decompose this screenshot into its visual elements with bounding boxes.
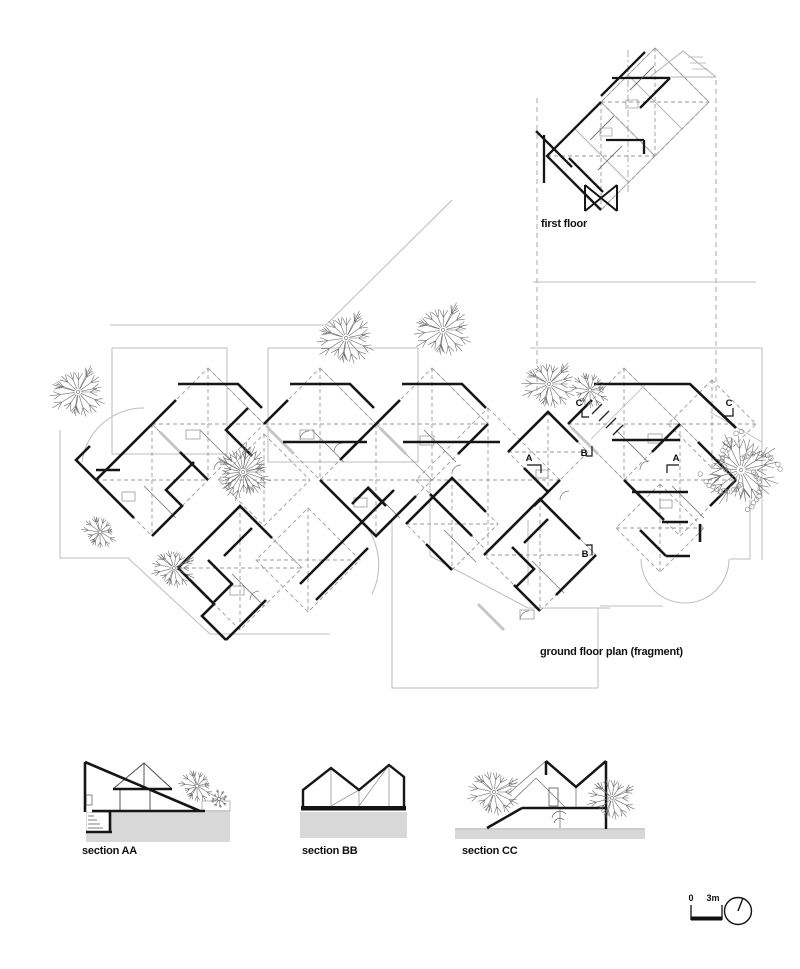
section-cc-stair bbox=[552, 811, 566, 823]
section-marker-b-bottom: B bbox=[582, 549, 589, 560]
walls-right-cluster bbox=[568, 384, 736, 556]
walls-mid-cluster bbox=[320, 412, 578, 570]
tree-trunk-icon bbox=[547, 382, 550, 385]
section-cc-window bbox=[549, 788, 558, 806]
section-cc-thin bbox=[505, 761, 576, 828]
section-aa-drawing bbox=[85, 762, 230, 842]
tree-trunk-icon bbox=[241, 470, 244, 473]
clock-compass-hand bbox=[738, 898, 743, 911]
tree-icon bbox=[587, 779, 634, 819]
architectural-drawing-sheet: first floor A A B B C C bbox=[0, 0, 800, 969]
plan-trees bbox=[50, 303, 783, 588]
tree-icon bbox=[212, 789, 228, 808]
ground-floor-plan: A A B B C C bbox=[76, 368, 756, 640]
scale-bar: 0 3m bbox=[688, 893, 722, 921]
section-bb-slab bbox=[301, 806, 406, 811]
section-aa-label: section AA bbox=[82, 845, 137, 857]
site-plot-lines bbox=[60, 200, 762, 688]
tree-trunk-icon bbox=[98, 530, 101, 533]
section-bb-drawing bbox=[300, 765, 407, 838]
scale-zero-label: 0 bbox=[688, 893, 693, 903]
tree-trunk-icon bbox=[344, 336, 347, 339]
tree-trunk-icon bbox=[76, 390, 79, 393]
section-bb-ground bbox=[300, 812, 407, 838]
stair-treads bbox=[592, 404, 623, 435]
first-floor-louvers bbox=[688, 57, 708, 69]
tree-icon bbox=[414, 303, 471, 356]
dashed-roof-diamonds bbox=[96, 368, 756, 630]
tree-trunk-icon bbox=[588, 388, 591, 391]
furniture bbox=[122, 430, 672, 619]
scale-bar-fill bbox=[691, 917, 722, 921]
first-floor-plan bbox=[536, 48, 716, 211]
tree-trunk-icon bbox=[610, 796, 613, 799]
drawing-canvas: first floor A A B B C C bbox=[0, 0, 800, 969]
scale-max-label: 3m bbox=[706, 893, 719, 903]
first-floor-furniture bbox=[600, 128, 612, 136]
first-floor-roof-outline bbox=[547, 48, 716, 210]
section-cc-walls bbox=[487, 761, 606, 829]
first-floor-label: first floor bbox=[541, 218, 588, 230]
first-floor-walls bbox=[536, 52, 670, 210]
tree-trunk-icon bbox=[441, 328, 444, 331]
tree-trunk-icon bbox=[172, 566, 175, 569]
walls-top-row bbox=[152, 384, 500, 480]
tree-icon bbox=[317, 311, 374, 364]
section-aa-trees bbox=[178, 771, 227, 809]
north-indicator bbox=[725, 898, 752, 925]
dashed-diamond-path bbox=[96, 368, 756, 630]
tree-trunk-icon bbox=[195, 784, 198, 787]
tree-icon bbox=[467, 772, 518, 816]
section-marker-a-left: A bbox=[526, 453, 533, 464]
walls-bottom-left-cluster bbox=[178, 490, 394, 640]
section-cc-label: section CC bbox=[462, 845, 518, 857]
tree-trunk-icon bbox=[492, 790, 495, 793]
section-cc-trees bbox=[467, 772, 635, 820]
roof-diagonals bbox=[208, 368, 736, 568]
section-marker-a-right: A bbox=[673, 453, 680, 464]
section-bb-label: section BB bbox=[302, 845, 358, 857]
section-marker-c-right: C bbox=[726, 398, 733, 409]
section-aa-window bbox=[86, 795, 92, 805]
ground-floor-label: ground floor plan (fragment) bbox=[540, 646, 683, 658]
door-arcs bbox=[214, 431, 649, 620]
tree-icon bbox=[50, 366, 105, 417]
tree-trunk-icon bbox=[739, 468, 742, 471]
site-boundary bbox=[60, 200, 762, 688]
section-cc-ground bbox=[455, 830, 645, 839]
section-marker-b-top: B bbox=[581, 448, 588, 459]
